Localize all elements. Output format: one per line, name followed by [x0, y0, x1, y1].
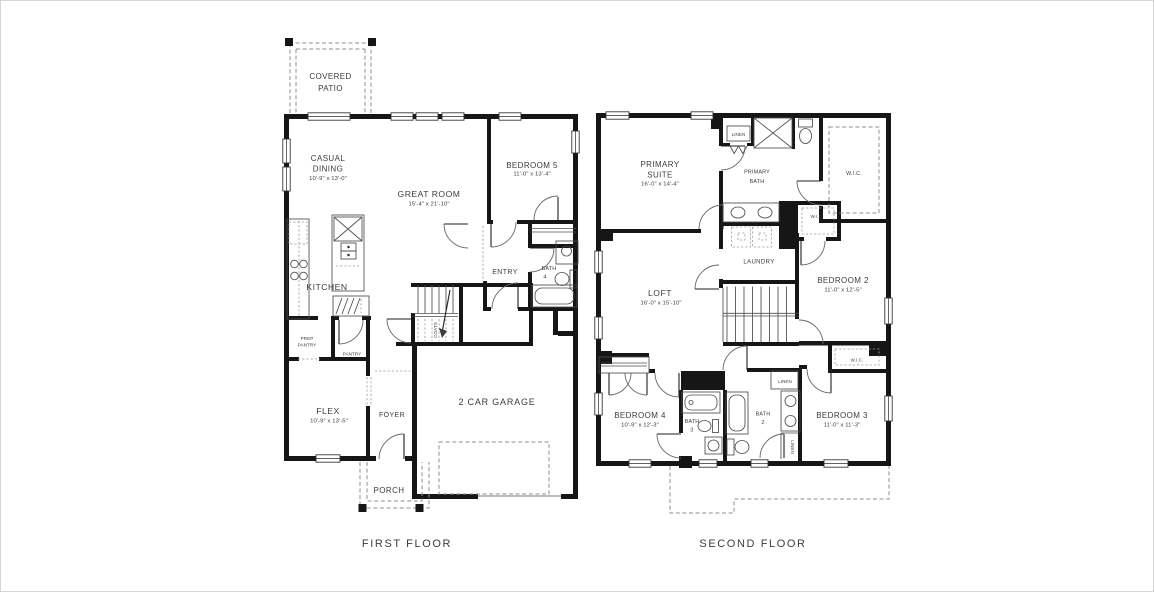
- porch-post-icon: [416, 504, 424, 512]
- bath3-label: BATH: [685, 419, 700, 425]
- floorplan-image: COVERED PATIO CASUAL DINING 10'-9" x 13'…: [0, 0, 1154, 592]
- bath2-label: BATH: [756, 412, 771, 418]
- bath3-toilet: [713, 420, 719, 433]
- garage-label: 2 CAR GARAGE: [458, 397, 535, 407]
- bath3-sink: [705, 437, 722, 454]
- bedroom2-dims: 11'-0" x 12'-5": [824, 288, 861, 294]
- kitchen-island: [332, 215, 364, 291]
- wic-dashed-outlines: [771, 127, 879, 389]
- bedroom3-dims: 11'-0" x 11'-3": [824, 423, 861, 429]
- bath2-label: 2: [761, 420, 764, 426]
- flex-label: FLEX: [316, 406, 340, 416]
- linen-bath2-label: LINEN: [790, 440, 795, 454]
- second-floor-plan: PRIMARY SUITE 16'-0" x 14'-4" LINEN PRIM…: [595, 112, 892, 550]
- flex-dims: 10'-9" x 13'-5": [310, 419, 348, 425]
- roofline-dashed: [670, 466, 889, 513]
- bath4-label: BATH: [542, 266, 557, 272]
- bath4-label: 4: [543, 275, 546, 281]
- linen-label: LINEN: [732, 132, 746, 137]
- great-room-dims: 15'-4" x 21'-10": [408, 202, 449, 208]
- bedroom5-label: BEDROOM 5: [506, 161, 558, 170]
- covered-patio-label: COVERED: [309, 72, 351, 81]
- bedroom5-dims: 11'-0" x 13'-4": [513, 172, 550, 178]
- entry-label: ENTRY: [492, 269, 518, 276]
- prep-pantry-label: PANTRY: [298, 343, 316, 348]
- patio-post-icon: [368, 38, 376, 46]
- great-room-label: GREAT ROOM: [398, 189, 461, 199]
- porch-post-icon: [359, 504, 367, 512]
- primary-suite-label: SUITE: [647, 171, 673, 180]
- bedroom4-dims: 10'-9" x 12'-3": [621, 423, 659, 429]
- bath2-vanity: [781, 391, 800, 431]
- primary-toilet: [799, 119, 813, 127]
- covered-patio-label: PATIO: [318, 84, 343, 93]
- primary-suite-dims: 16'-0" x 14'-4": [641, 182, 679, 188]
- bath3-label: 3: [690, 428, 693, 434]
- dryer-icon: [753, 227, 772, 247]
- washer-icon: [732, 227, 751, 247]
- wic-primary-label: W.I.C.: [846, 171, 862, 177]
- prep-pantry-label: PREP: [301, 336, 314, 341]
- first-floor-dashed: [298, 226, 561, 512]
- bedroom5-closet: [530, 229, 576, 233]
- patio-post-icon: [285, 38, 293, 46]
- loft-label: LOFT: [648, 288, 672, 298]
- second-floor-title: SECOND FLOOR: [699, 538, 806, 550]
- bath4-fixtures: [532, 241, 578, 307]
- primary-bath-label: PRIMARY: [744, 170, 770, 176]
- casual-dining-dims: 10'-9" x 13'-0": [309, 176, 347, 182]
- casual-dining-label: CASUAL: [311, 154, 346, 163]
- wic-bedroom3-label: W.I.C.: [851, 358, 864, 363]
- kitchen-label: KITCHEN: [306, 282, 347, 292]
- bedroom2-label: BEDROOM 2: [817, 276, 869, 285]
- laundry-fixtures: [732, 227, 772, 247]
- porch-label: PORCH: [374, 486, 405, 495]
- primary-bath-label: BATH: [750, 179, 765, 185]
- laundry-label: LAUNDRY: [743, 260, 774, 266]
- kitchen-fixtures: [287, 215, 369, 319]
- loft-dims: 16'-0" x 15'-10": [640, 301, 681, 307]
- wic-hall-label: W.I.C.: [811, 214, 824, 219]
- casual-dining-label: DINING: [313, 165, 343, 174]
- pantry-label: PANTRY: [343, 352, 361, 357]
- first-floor-plan: COVERED PATIO CASUAL DINING 10'-9" x 13'…: [283, 38, 579, 550]
- second-floor-stairs: [723, 287, 799, 343]
- first-floor-title: FIRST FLOOR: [362, 538, 452, 550]
- garage-door-outline: [439, 442, 549, 494]
- floorplan-svg: COVERED PATIO CASUAL DINING 10'-9" x 13'…: [1, 1, 1154, 592]
- foyer-label: FOYER: [379, 412, 405, 419]
- bath2-toilet: [727, 439, 734, 455]
- bedroom3-label: BEDROOM 3: [816, 411, 868, 420]
- coats-label: COATS: [433, 322, 438, 338]
- primary-suite-label: PRIMARY: [640, 160, 679, 169]
- linen-hall-label: LINEN: [778, 379, 792, 384]
- bedroom4-label: BEDROOM 4: [614, 411, 666, 420]
- first-floor-doors: [339, 196, 558, 459]
